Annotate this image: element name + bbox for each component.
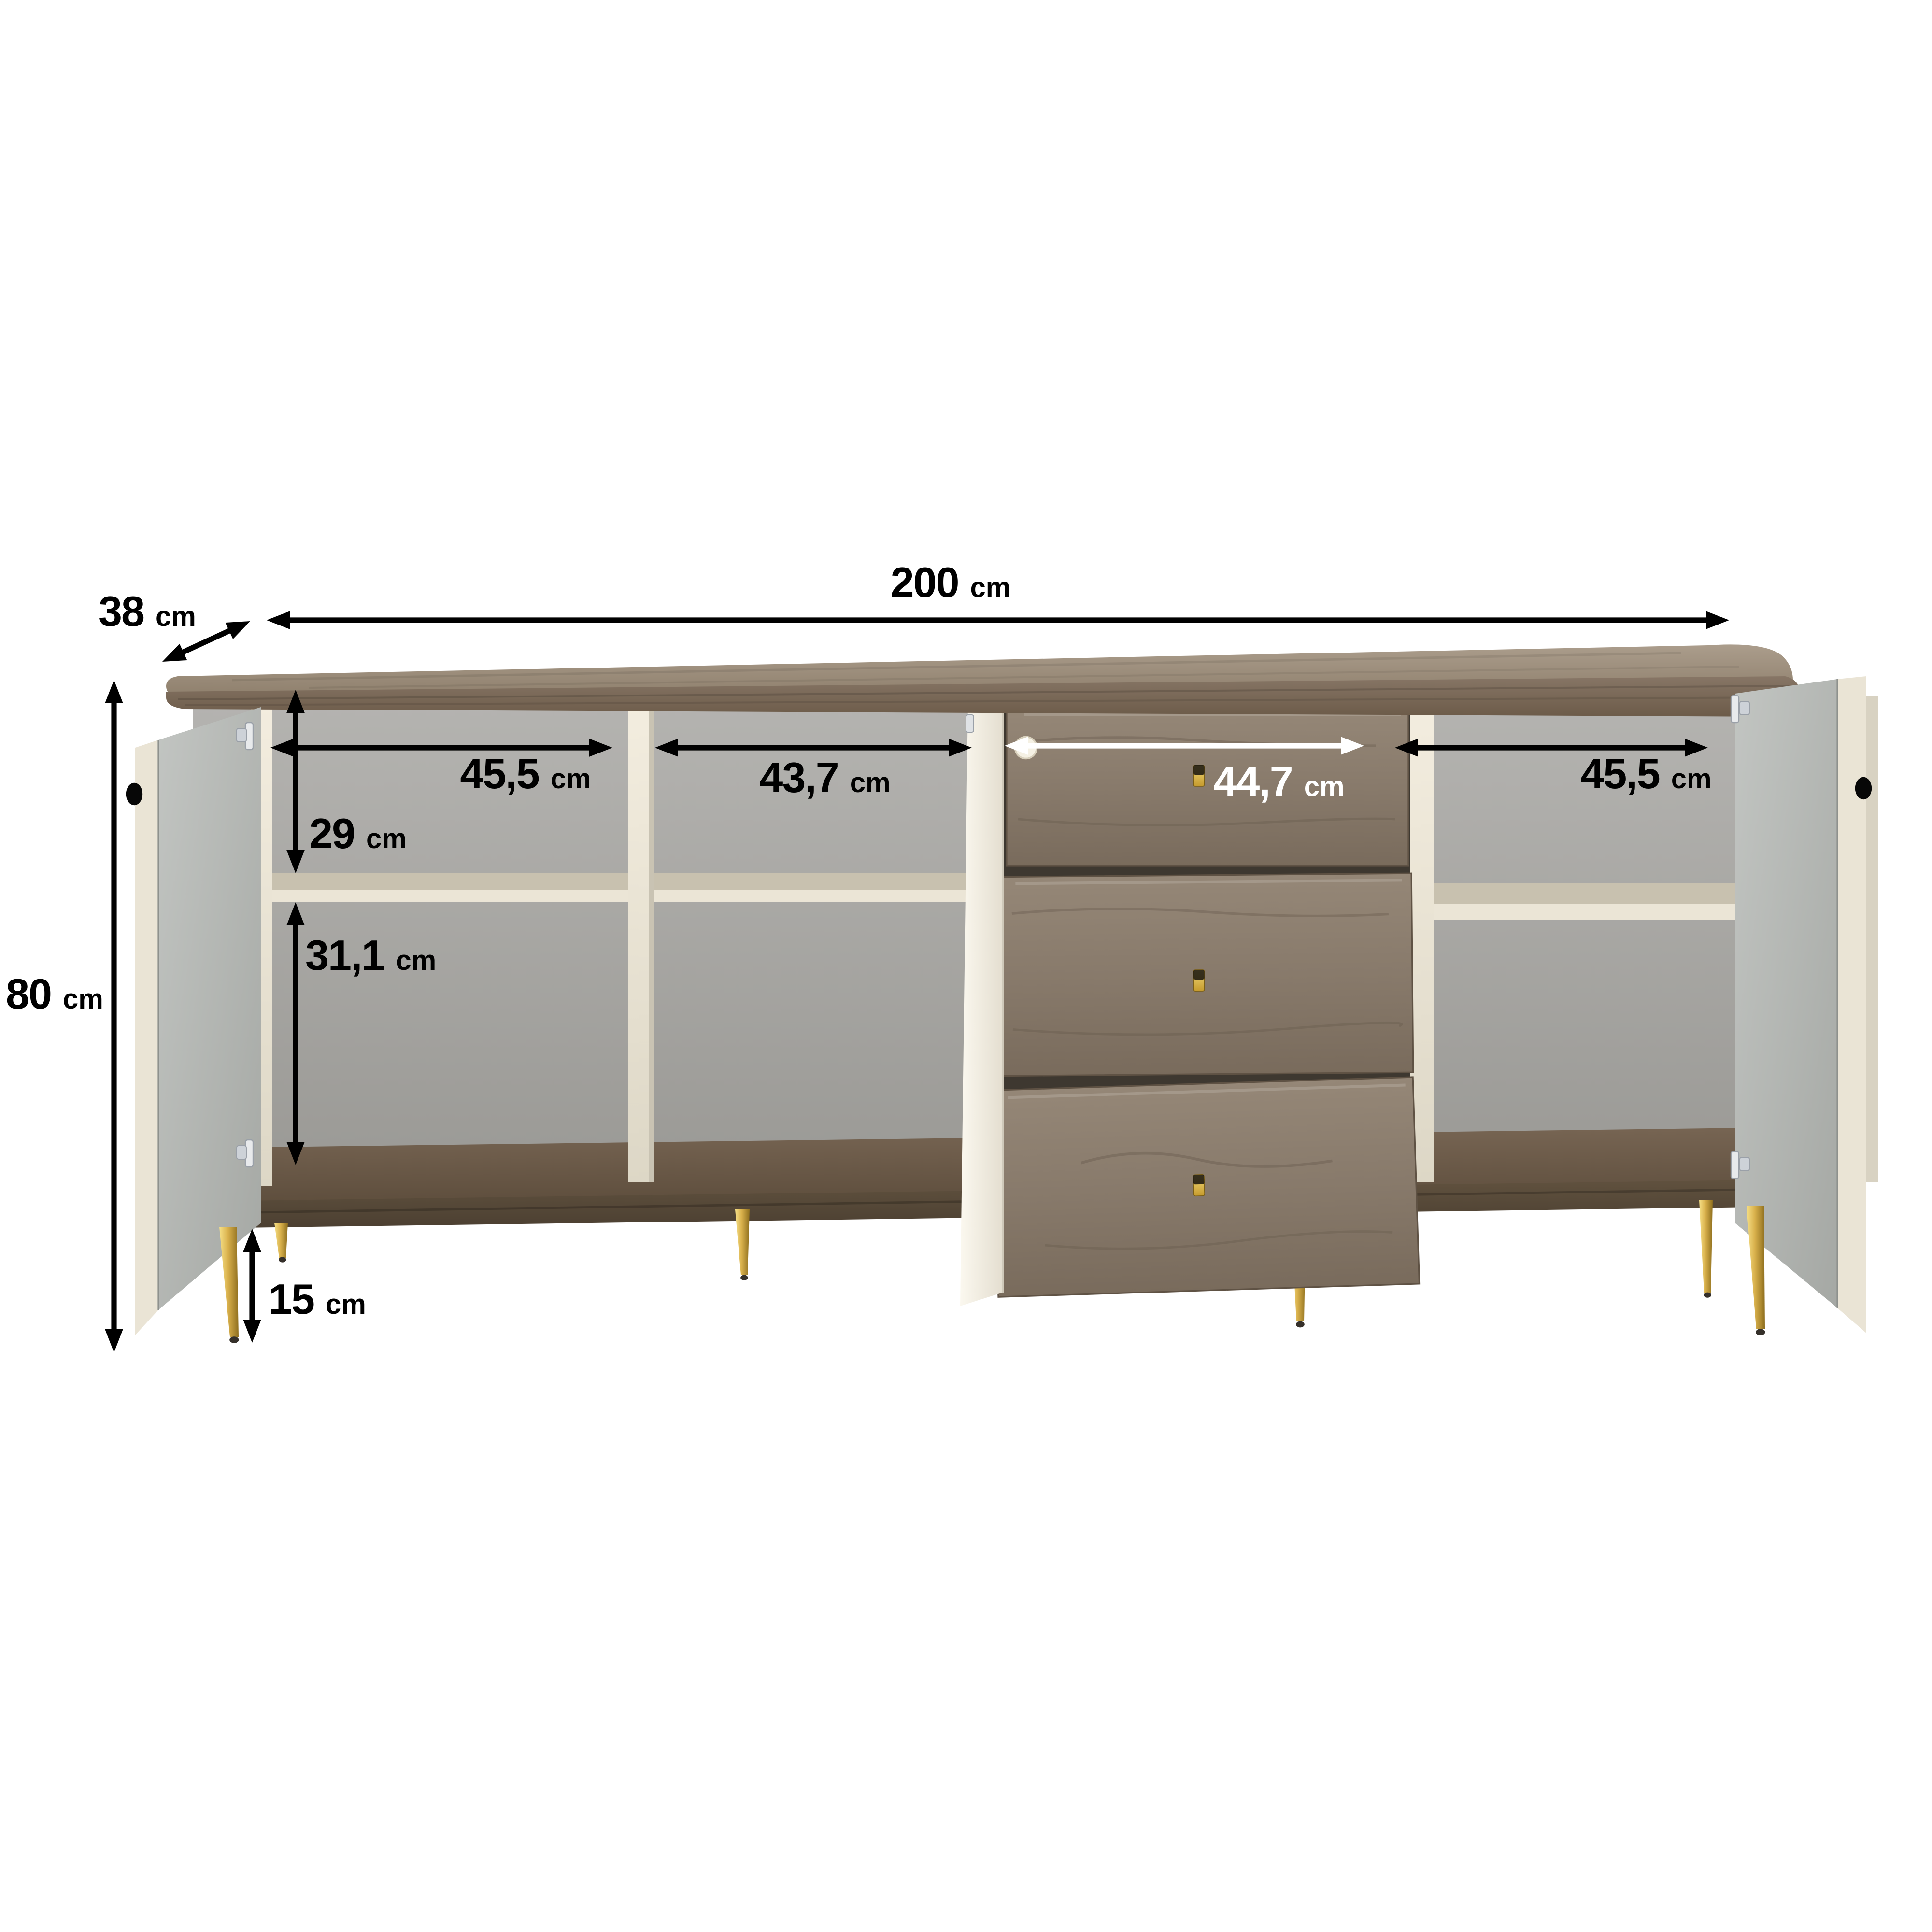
dimension-diagram-stage: 200cm 38cm 80cm 45,5cm 43,7cm 44,7cm 45,… xyxy=(0,0,1932,1932)
dimension-label-height: 80cm xyxy=(6,974,103,1016)
drawer-bottom xyxy=(992,1077,1420,1297)
dimension-label-depth: 38cm xyxy=(99,591,196,634)
dimension-arrow-leg-height xyxy=(243,1229,261,1343)
top-panel xyxy=(166,644,1801,717)
leg xyxy=(274,1223,288,1263)
dimension-label-upper-compartment: 29cm xyxy=(309,813,407,856)
sideboard-illustration xyxy=(0,0,1932,1932)
dimension-arrow-width xyxy=(267,611,1729,629)
left-shelf xyxy=(270,873,970,902)
dimension-label-width: 200cm xyxy=(757,562,1144,605)
door-knob xyxy=(126,783,142,805)
leg xyxy=(219,1227,239,1343)
leg xyxy=(1699,1200,1713,1298)
leg xyxy=(735,1209,750,1280)
drawer-handle xyxy=(1193,1175,1205,1196)
dimension-label-center-compartment: 43,7cm xyxy=(632,757,1018,800)
drawer-middle xyxy=(1000,873,1413,1076)
hinge xyxy=(966,715,974,732)
left-door-open xyxy=(126,707,261,1335)
dimension-label-lower-compartment: 31,1cm xyxy=(305,935,436,978)
leg xyxy=(1747,1206,1765,1335)
door-knob xyxy=(1855,777,1872,799)
dimension-arrow-height xyxy=(105,680,123,1352)
dimension-label-right-compartment: 45,5cm xyxy=(1453,753,1839,796)
dimension-label-leg-height: 15cm xyxy=(269,1279,366,1321)
dimension-label-drawer-width: 44,7cm xyxy=(1086,761,1472,804)
drawer-handle xyxy=(1193,970,1205,991)
